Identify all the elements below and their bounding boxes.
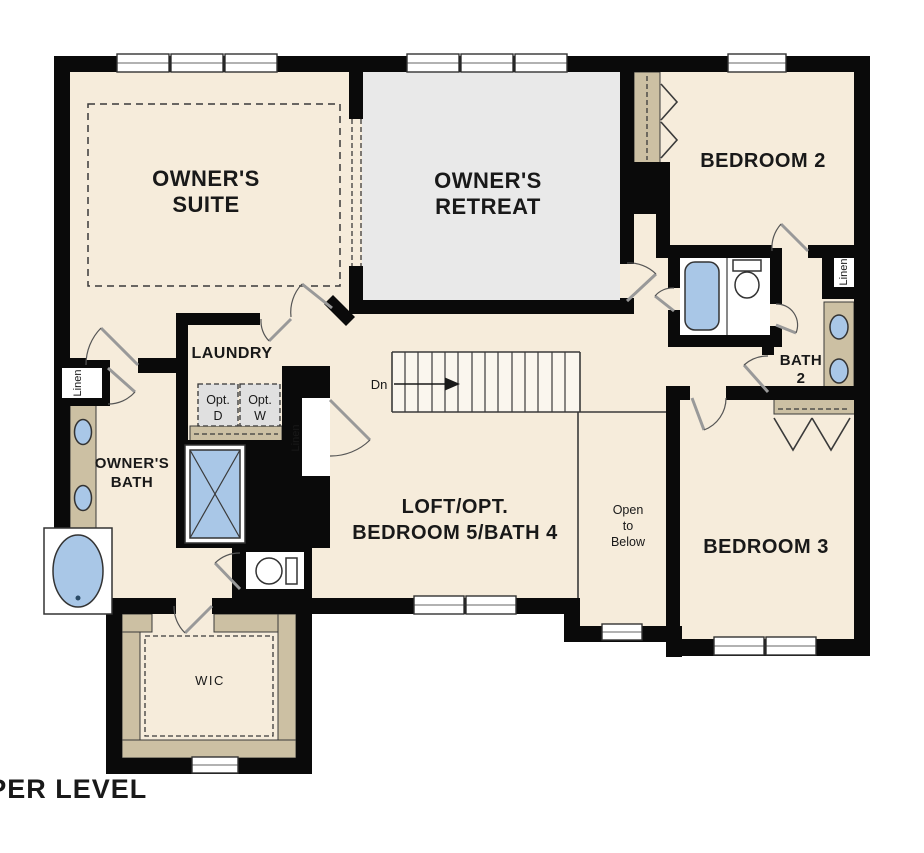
linen2-label: Linen: [838, 259, 850, 286]
window-wic: [192, 757, 238, 773]
linen1-label: Linen: [72, 370, 84, 397]
bath2-toilet-tank: [733, 260, 761, 271]
wall-wic-left: [106, 598, 122, 774]
bath2-sink-1: [830, 315, 848, 339]
bedroom3-closet-shelf: [774, 398, 856, 414]
wall-retreat-bottom: [349, 300, 634, 314]
open-to-below-label-3: Below: [611, 535, 646, 549]
wall-retreat-right-mid: [620, 210, 634, 264]
wall-laundry-left: [176, 313, 188, 443]
wall-bath2-comp-right-b: [770, 326, 782, 347]
owners-bath-sink-1: [75, 420, 92, 445]
wall-suite-retreat-top: [349, 64, 363, 119]
bath2-tub: [685, 262, 719, 330]
owners-toilet-bowl: [256, 558, 282, 584]
bath2-label-2: 2: [797, 370, 806, 387]
wall-linen2-bottom: [822, 287, 868, 299]
loft-label-2: BEDROOM 5/BATH 4: [352, 522, 558, 544]
open-to-below-label-1: Open: [613, 503, 644, 517]
opt-washer-label-2: W: [254, 409, 266, 423]
open-to-below-label-2: to: [623, 519, 633, 533]
linen3-label: Linen: [290, 425, 302, 452]
floor-plan-page: OWNER'S SUITE OWNER'S RETREAT BEDROOM 2 …: [0, 0, 924, 853]
stairs-down-label: Dn: [371, 377, 388, 392]
opt-dryer-label-2: D: [213, 409, 222, 423]
bedroom2-label: BEDROOM 2: [700, 150, 826, 172]
window-open-below: [602, 624, 642, 640]
floor-plan-drawing: OWNER'S SUITE OWNER'S RETREAT BEDROOM 2 …: [0, 0, 924, 853]
wall-bath2-comp-bottom: [668, 335, 782, 347]
wall-bedroom3-left: [666, 386, 680, 655]
linen3-interior: [302, 398, 330, 476]
loft-label-1: LOFT/OPT.: [402, 496, 509, 518]
plan-title: UPPER LEVEL: [0, 774, 147, 804]
wall-exterior-left: [54, 56, 70, 606]
owners-suite-label-2: SUITE: [172, 192, 239, 217]
owners-bath-label-2: BATH: [111, 474, 154, 491]
owners-tub-drain: [76, 596, 81, 601]
wic-label: WIC: [195, 673, 225, 688]
owners-retreat-label-2: RETREAT: [435, 194, 541, 219]
bath2-toilet-bowl: [735, 272, 759, 298]
wall-bath2-hall-a: [762, 347, 774, 355]
owners-bath-sink-2: [75, 486, 92, 511]
window-owners-suite: [117, 54, 277, 72]
wall-bedroom3-top-b: [726, 386, 774, 400]
owners-suite-label-1: OWNER'S: [152, 166, 260, 191]
wall-laundry-top: [176, 313, 260, 325]
wall-retreat-right-top: [620, 64, 634, 164]
wall-exterior-right: [854, 56, 870, 656]
laundry-label: LAUNDRY: [191, 345, 272, 362]
bedroom3-label: BEDROOM 3: [703, 536, 829, 558]
wall-wic-right: [296, 598, 312, 774]
wall-bath2-bottom: [774, 386, 868, 400]
opt-dryer-label-1: Opt.: [206, 393, 230, 407]
owners-retreat-label-1: OWNER'S: [434, 168, 542, 193]
wall-bath-bottom-b: [212, 598, 310, 614]
bath2-sink-2: [830, 359, 848, 383]
window-bedroom2: [728, 54, 786, 72]
window-owners-retreat: [407, 54, 567, 72]
owners-toilet-tank: [286, 558, 297, 584]
bath2-label-1: BATH: [780, 352, 823, 369]
wall-bath2-comp-right-a: [770, 248, 782, 304]
owners-bath-label-1: OWNER'S: [95, 455, 170, 472]
wall-bath2-comp-left-a: [668, 248, 680, 288]
opt-washer-label-1: Opt.: [248, 393, 272, 407]
